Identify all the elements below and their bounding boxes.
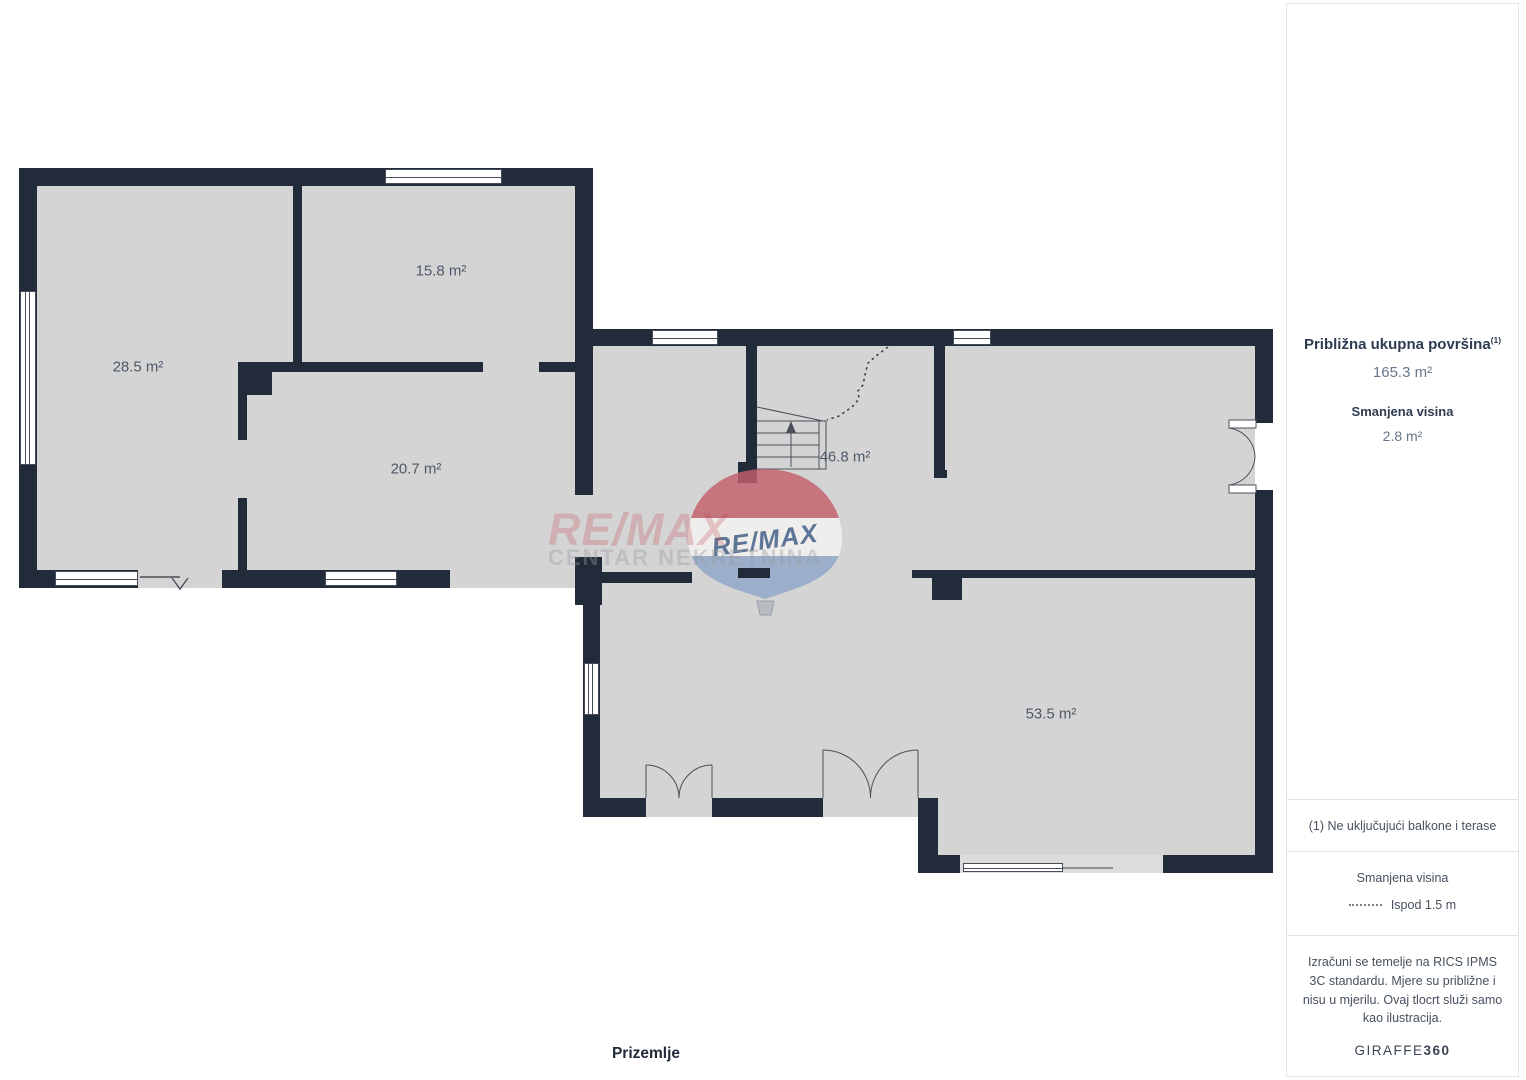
room-area-label: 20.7 m² (391, 461, 442, 478)
room-area-label: 15.8 m² (416, 263, 467, 280)
disclaimer-text: Izračuni se temelje na RICS IPMS 3C stan… (1302, 953, 1503, 1028)
giraffe360-logo: GIRAFFE360 (1302, 1043, 1503, 1058)
footnote-marker: (1) (1491, 335, 1501, 345)
reduced-height-label: Smanjena visina (1287, 404, 1518, 419)
dotted-line-icon (1349, 904, 1382, 906)
disclaimer-section: Izračuni se temelje na RICS IPMS 3C stan… (1287, 935, 1518, 1076)
info-panel: Približna ukupna površina(1) 165.3 m² Sm… (1286, 3, 1519, 1077)
reduced-height-value: 2.8 m² (1287, 428, 1518, 444)
total-area-value: 165.3 m² (1287, 364, 1518, 381)
footnote: (1) Ne uključujući balkone i terase (1287, 799, 1518, 851)
double-door-icon (1229, 420, 1256, 493)
floor-title: Prizemlje (612, 1045, 680, 1063)
floorplan-page: RE/MAX RE/MAX CENTAR NEKRETNINA 28.5 m² … (0, 0, 1526, 1080)
room-area-label: 53.5 m² (1026, 706, 1077, 723)
stairs-icon (757, 407, 826, 469)
total-area-label: Približna ukupna površina(1) (1287, 335, 1518, 353)
entrance-arrow-icon (140, 577, 188, 589)
area-summary: Približna ukupna površina(1) 165.3 m² Sm… (1287, 335, 1518, 444)
double-door-icon (646, 765, 712, 798)
room-area-label: 28.5 m² (113, 359, 164, 376)
legend-title: Smanjena visina (1287, 871, 1518, 885)
room-area-label: 46.8 m² (820, 449, 871, 466)
watermark-subtitle: CENTAR NEKRETNINA (548, 545, 748, 571)
balloon-basket (757, 601, 774, 615)
legend-value: Ispod 1.5 m (1391, 898, 1456, 912)
double-door-icon (823, 750, 918, 798)
reduced-height-line (827, 347, 888, 420)
reduced-height-legend: Smanjena visina Ispod 1.5 m (1287, 851, 1518, 935)
